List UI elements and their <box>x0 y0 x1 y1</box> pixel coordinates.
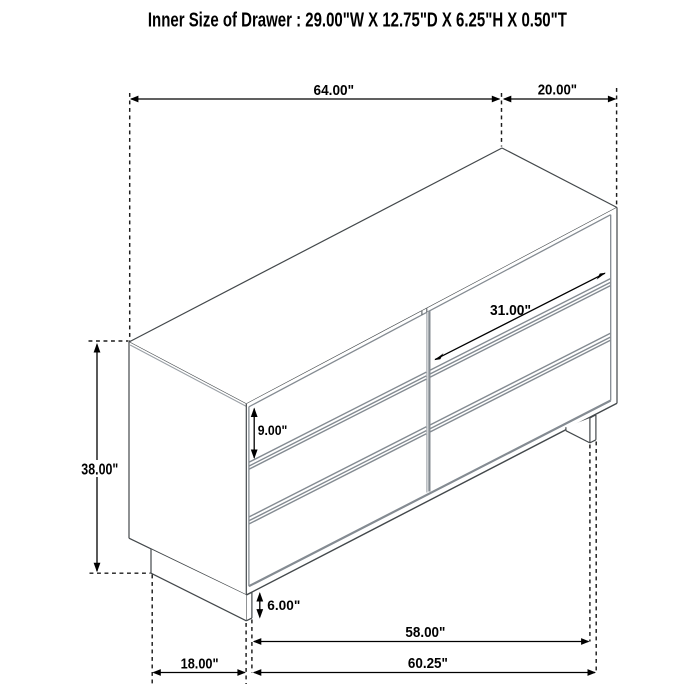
svg-text:31.00": 31.00" <box>490 302 531 319</box>
svg-text:9.00": 9.00" <box>258 423 288 438</box>
svg-text:Inner Size of Drawer : 29.00"W: Inner Size of Drawer : 29.00"W X 12.75"D… <box>148 10 567 32</box>
svg-text:64.00": 64.00" <box>314 82 355 99</box>
svg-text:58.00": 58.00" <box>405 624 445 641</box>
svg-text:60.25": 60.25" <box>408 655 448 672</box>
svg-text:18.00": 18.00" <box>181 656 219 673</box>
svg-text:6.00": 6.00" <box>267 597 300 613</box>
svg-text:38.00": 38.00" <box>81 462 118 479</box>
svg-text:20.00": 20.00" <box>538 82 577 99</box>
